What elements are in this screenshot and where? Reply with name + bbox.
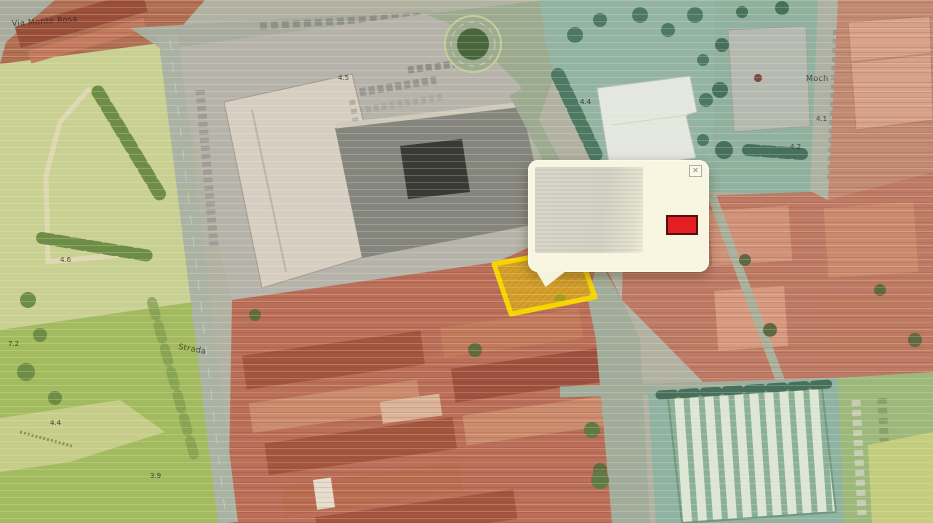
roundabout-island — [457, 28, 489, 60]
spot-elevation: 4.1 — [816, 115, 827, 123]
popup-close-button[interactable]: ✕ — [689, 165, 702, 177]
map-canvas[interactable]: Via Monte Rosa Strada Moch 4.5 4.4 4.6 7… — [0, 0, 933, 523]
spot-elevation: 4.4 — [580, 98, 592, 106]
spot-elevation: 4.6 — [60, 256, 72, 264]
zone-color-swatch — [666, 215, 698, 235]
spot-elevation: 4.2 — [790, 143, 801, 151]
popup-blurred-content — [535, 167, 643, 253]
zone-market-southeast — [648, 378, 844, 523]
roof-skylight — [400, 139, 470, 199]
spot-elevation: 3.9 — [150, 472, 161, 480]
street-label-moch: Moch — [806, 74, 828, 83]
spot-elevation: 7.2 — [8, 340, 19, 348]
info-popup: ✕ — [528, 160, 709, 272]
zone-teal-northeast — [712, 0, 818, 195]
map-viewport[interactable]: Via Monte Rosa Strada Moch 4.5 4.4 4.6 7… — [0, 0, 933, 523]
spot-elevation: 4.4 — [50, 419, 62, 427]
building-gray — [728, 26, 810, 132]
striped-roof — [668, 388, 836, 523]
zone-residential-northeast — [810, 0, 933, 200]
zone-green-southeast — [838, 372, 933, 523]
building-white — [597, 76, 697, 170]
spot-elevation: 4.5 — [338, 74, 349, 82]
